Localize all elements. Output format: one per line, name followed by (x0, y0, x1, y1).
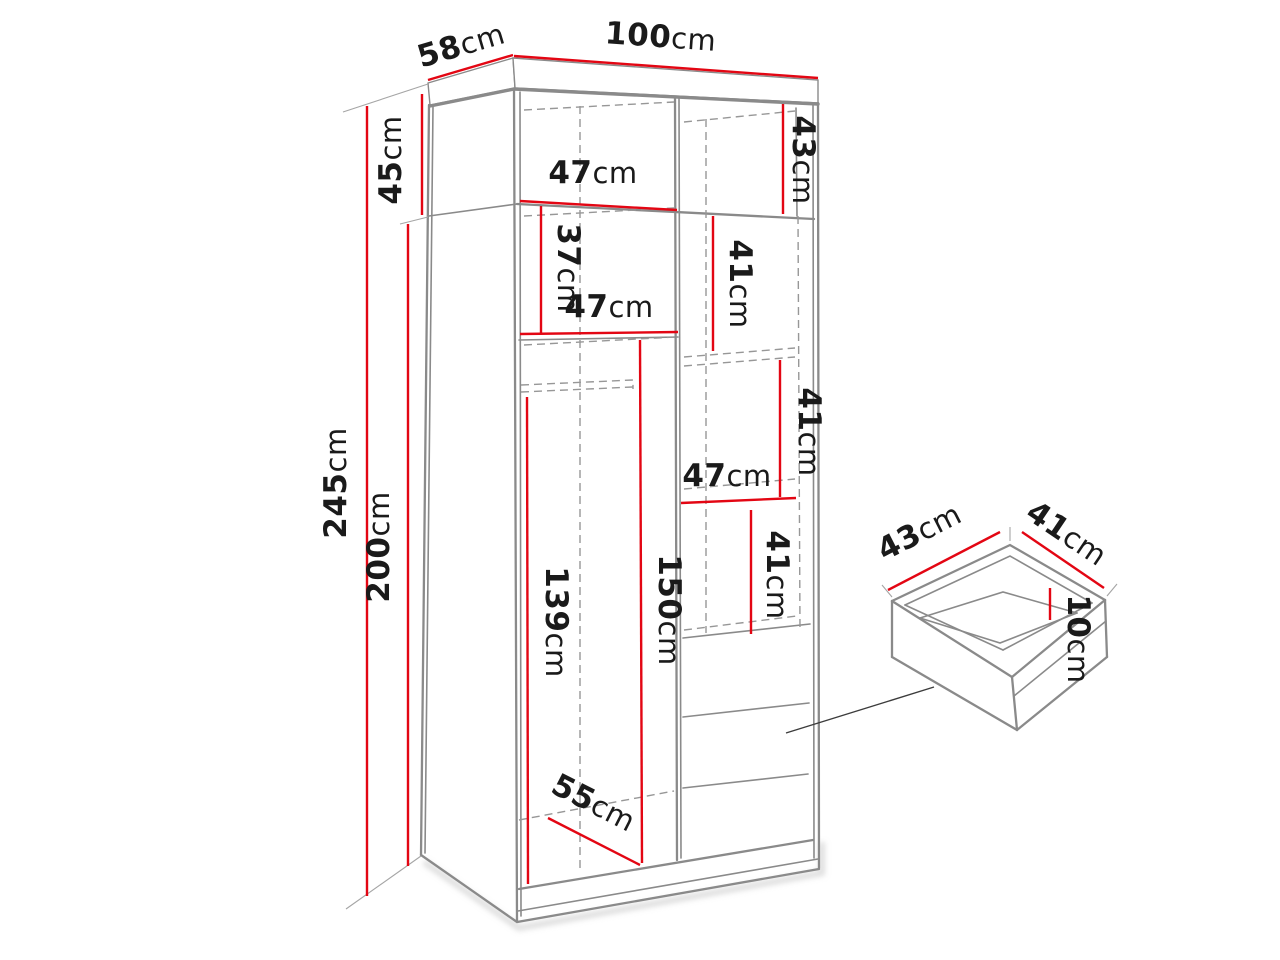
label-top-shelf-47: 47cm (548, 155, 637, 191)
label-right-150: 150cm (651, 554, 687, 665)
label-depth-55: 55cm (546, 767, 642, 840)
label-lower-section-200: 200cm (361, 491, 397, 602)
label-right-41-c: 41cm (759, 530, 795, 619)
label-width-100: 100cm (604, 15, 718, 59)
drawer-front-2 (683, 703, 809, 717)
label-right-41-b: 41cm (791, 387, 827, 476)
label-top-right-43: 43cm (785, 115, 821, 204)
drawer-front-1 (683, 624, 810, 638)
dim-line-139 (527, 397, 528, 884)
wardrobe-shadow (424, 842, 822, 928)
dim-line-47-right (681, 498, 796, 503)
dim-line-47-mid (520, 332, 678, 334)
dim-line-150 (640, 340, 642, 863)
diagram-canvas: 58cm 100cm 45cm 245cm 200cm 43cm 47cm 37… (0, 0, 1280, 960)
label-mid-shelf-47: 47cm (564, 289, 653, 325)
drawer-leader-line (786, 687, 934, 733)
wardrobe-dimension-diagram: 58cm 100cm 45cm 245cm 200cm 43cm 47cm 37… (0, 0, 1280, 960)
label-drawer-10: 10cm (1060, 594, 1096, 683)
label-height-245: 245cm (318, 427, 354, 538)
drawer-front-3 (683, 774, 808, 788)
label-right-41-a: 41cm (722, 239, 758, 328)
label-left-139: 139cm (538, 566, 574, 677)
label-top-section-45: 45cm (373, 115, 409, 204)
label-right-shelf-47: 47cm (682, 458, 771, 494)
